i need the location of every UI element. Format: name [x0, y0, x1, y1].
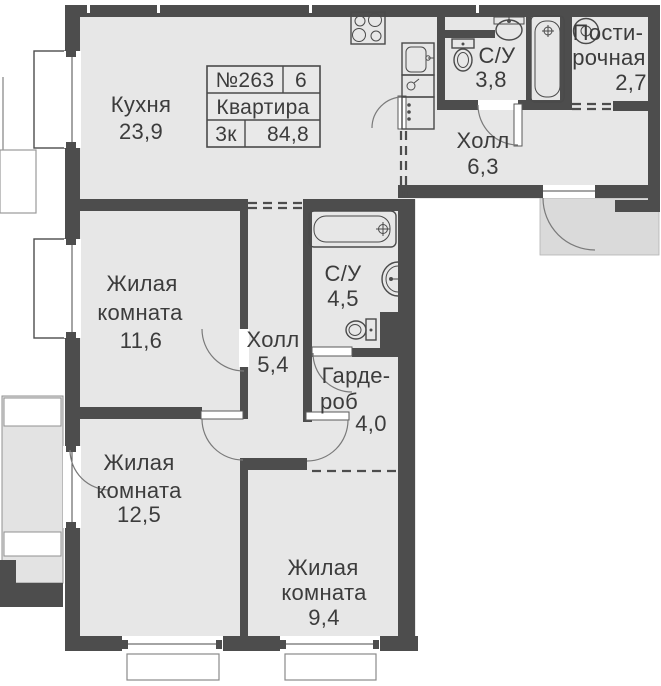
- room-area-laundry: 2,7: [615, 70, 646, 95]
- floor-plan-drawing: №263 6 Квартира 3к 84,8 Кухня 23,9 С/У 3…: [0, 0, 661, 686]
- room-label-wardrobe-2: роб: [320, 389, 358, 414]
- room-area-hall-inner: 5,4: [257, 352, 288, 377]
- window-living-room-1: [34, 239, 81, 338]
- room-label-living-room-1b: комната: [97, 300, 183, 325]
- neighbor-window: [0, 77, 36, 213]
- room-area-hall-main: 6,3: [467, 154, 498, 179]
- apartment-floor: 6: [295, 69, 307, 92]
- room-label-wardrobe-1: Гарде-: [322, 363, 391, 388]
- room-area-kitchen: 23,9: [119, 119, 163, 144]
- room-area-wardrobe: 4,0: [355, 411, 386, 436]
- apartment-number: №263: [216, 69, 275, 92]
- room-area-living-room-1: 11,6: [120, 328, 162, 353]
- room-area-bathroom-large: 4,5: [327, 286, 358, 311]
- room-label-living-room-1a: Жилая: [106, 271, 177, 296]
- apartment-card: №263 6 Квартира 3к 84,8: [207, 66, 320, 147]
- room-label-bathroom-small: С/У: [479, 43, 517, 68]
- apartment-rooms-label: 3к: [215, 123, 237, 146]
- room-label-hall-main: Холл: [456, 128, 509, 153]
- room-label-bathroom-large: С/У: [325, 261, 363, 286]
- room-label-laundry-2: рочная: [572, 45, 646, 70]
- room-label-living-room-3b: комната: [281, 580, 367, 605]
- room-label-living-room-2a: Жилая: [103, 450, 174, 475]
- room-area-bathroom-small: 3,8: [475, 67, 506, 92]
- room-label-hall-inner: Холл: [246, 327, 299, 352]
- room-area-living-room-3: 9,4: [308, 605, 339, 630]
- room-area-living-room-2: 12,5: [117, 502, 161, 527]
- balcony: [2, 396, 63, 583]
- room-label-laundry-1: Пости-: [573, 20, 644, 45]
- room-label-living-room-3a: Жилая: [287, 555, 358, 580]
- floor-plan: №263 6 Квартира 3к 84,8 Кухня 23,9 С/У 3…: [0, 0, 661, 686]
- room-label-living-room-2b: комната: [96, 478, 182, 503]
- window-kitchen: [34, 51, 81, 148]
- room-label-kitchen: Кухня: [111, 92, 171, 117]
- window-living-room-2: [122, 636, 223, 680]
- apartment-type-label: Квартира: [216, 96, 309, 119]
- window-living-room-3: [280, 636, 380, 680]
- apartment-total-area: 84,8: [267, 123, 309, 146]
